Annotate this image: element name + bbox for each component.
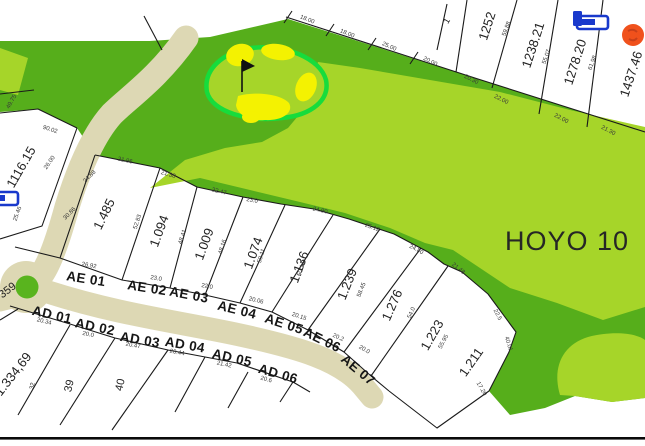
map-border-bottom [0, 437, 645, 440]
map-graphics [0, 0, 645, 446]
roundabout [0, 261, 52, 313]
round-marker-icon[interactable] [622, 24, 644, 46]
roundabout-island [16, 276, 39, 299]
plat-map: AE 01AE 02AE 03AE 04AE 05AE 06AE 07AD 01… [0, 0, 645, 446]
hole-label: HOYO 10 [505, 226, 629, 257]
